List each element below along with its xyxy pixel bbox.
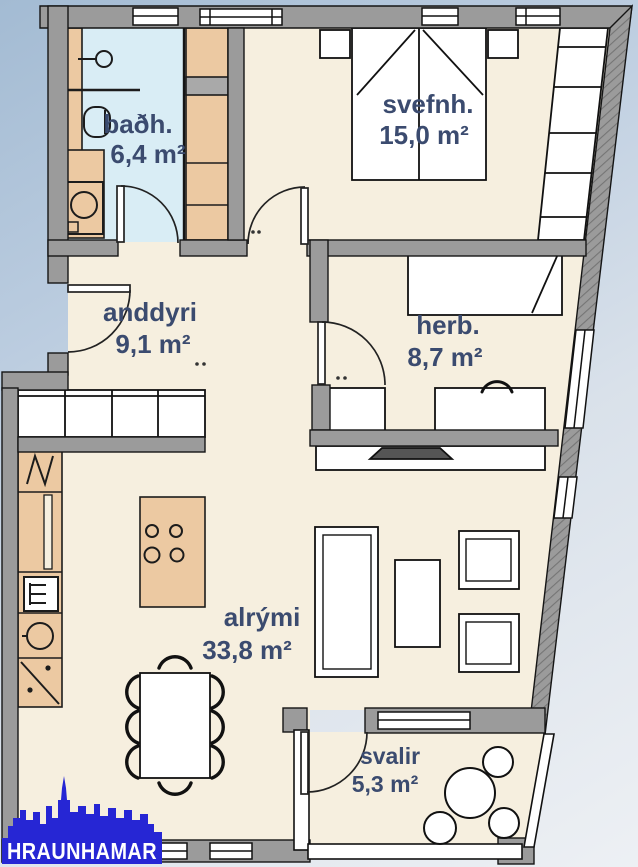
tv-icon (370, 448, 452, 459)
balcony-railing-bottom (308, 844, 522, 859)
dining-table (140, 673, 210, 778)
tall-cabinet-slot (44, 495, 52, 569)
balcony-label: svalir (360, 743, 420, 769)
bathroom-area: 6,4 m² (110, 139, 185, 169)
desk (435, 388, 545, 432)
hall-closet-shelf (186, 77, 228, 95)
window-bottom-2 (210, 843, 252, 859)
balcony-area: 5,3 m² (352, 771, 419, 797)
floorplan-drawing: baðh. 6,4 m² svefnh. 15,0 m² anddyri 9,1… (0, 0, 638, 867)
wall-left-lower (2, 388, 18, 862)
entry-area: 9,1 m² (115, 329, 190, 359)
wall-left-step (2, 372, 68, 390)
single-bed (408, 252, 562, 315)
living-area: 33,8 m² (202, 635, 292, 665)
herb-wardrobe (322, 388, 385, 432)
armchair-1 (459, 531, 519, 589)
bedroom-label: svefnh. (382, 89, 473, 119)
herb-label: herb. (416, 310, 480, 340)
coffee-table (395, 560, 440, 647)
window-bottom-1 (158, 843, 187, 859)
balcony-chair-2 (489, 808, 519, 838)
sofa (315, 527, 378, 677)
window-balcony-wall (378, 712, 470, 729)
window-top-1 (133, 8, 178, 25)
kitchen-island (140, 497, 205, 607)
hall-closet-column (186, 28, 228, 240)
window-top-3 (422, 8, 458, 25)
bathroom-cabinet (66, 150, 104, 238)
armchair-2 (459, 614, 519, 672)
tv-sideboard (316, 446, 545, 470)
hall-wardrobe (18, 390, 205, 437)
herb-area: 8,7 m² (407, 342, 482, 372)
living-label: alrými (224, 602, 301, 632)
floorplan-image: baðh. 6,4 m² svefnh. 15,0 m² anddyri 9,1… (0, 0, 638, 867)
window-top-4 (516, 8, 560, 25)
window-top-2 (200, 9, 282, 25)
bedroom-area: 15,0 m² (379, 120, 469, 150)
logo-text: HRAUNHAMAR (7, 838, 157, 864)
balcony-chair-1 (483, 747, 513, 777)
entry-label: anddyri (103, 297, 197, 327)
balcony-table (445, 768, 495, 818)
bathroom-label: baðh. (103, 109, 172, 139)
balcony-chair-3 (424, 812, 456, 844)
